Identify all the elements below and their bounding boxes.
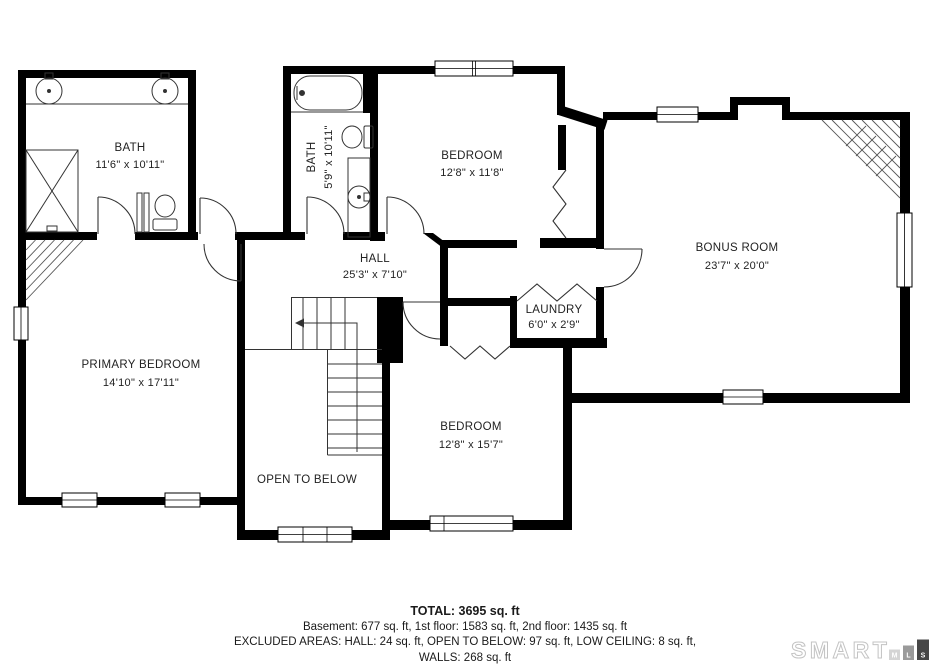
logo-brand-text: SMART: [791, 637, 890, 663]
svg-text:12'8" x 11'8": 12'8" x 11'8": [440, 167, 503, 179]
laundry-bifold-door: [517, 284, 597, 301]
bathtub-icon: [294, 76, 362, 110]
shower-icon: [26, 150, 78, 232]
toilet-icon: [153, 195, 177, 230]
svg-text:25'3" x 7'10": 25'3" x 7'10": [343, 269, 407, 281]
floor-areas: Basement: 677 sq. ft, 1st floor: 1583 sq…: [0, 620, 930, 636]
svg-text:BATH: BATH: [306, 141, 318, 172]
room-label-bath-small: BATH 5'9" x 10'11": [306, 125, 335, 188]
svg-text:12'8" x 15'7": 12'8" x 15'7": [439, 439, 503, 451]
svg-text:6'0" x 2'9": 6'0" x 2'9": [528, 319, 579, 331]
svg-text:L: L: [906, 653, 911, 660]
svg-text:BONUS ROOM: BONUS ROOM: [696, 242, 779, 254]
smartmls-logo: SMART M L S: [788, 634, 930, 664]
room-label-hall: HALL 25'3" x 7'10": [343, 253, 407, 281]
svg-text:BEDROOM: BEDROOM: [441, 150, 503, 162]
stair-direction-arrow: [303, 323, 357, 452]
low-ceiling-hatch: [26, 120, 900, 300]
svg-text:BATH: BATH: [114, 142, 145, 154]
vanity-sink-icon: [348, 158, 370, 237]
svg-text:14'10" x 17'11": 14'10" x 17'11": [103, 377, 179, 389]
room-label-laundry: LAUNDRY 6'0" x 2'9": [518, 302, 590, 331]
toilet-icon: [342, 126, 373, 148]
svg-text:11'6" x 10'11": 11'6" x 10'11": [95, 159, 164, 171]
svg-text:S: S: [921, 653, 926, 660]
svg-text:M: M: [892, 653, 898, 660]
floor-plan: BATH 11'6" x 10'11" BATH 5'9" x 10'11" B…: [0, 0, 930, 600]
staircase: [245, 298, 382, 456]
room-label-open-to-below: OPEN TO BELOW: [257, 474, 357, 486]
total-area: TOTAL: 3695 sq. ft: [0, 604, 930, 620]
room-label-primary-bedroom: PRIMARY BEDROOM 14'10" x 17'11": [81, 359, 200, 389]
room-label-bedroom-top: BEDROOM 12'8" x 11'8": [440, 150, 503, 179]
svg-text:23'7" x 20'0": 23'7" x 20'0": [705, 260, 769, 272]
floor-plan-page: BATH 11'6" x 10'11" BATH 5'9" x 10'11" B…: [0, 0, 930, 668]
room-label-bonus-room: BONUS ROOM 23'7" x 20'0": [696, 242, 779, 272]
svg-text:LAUNDRY: LAUNDRY: [526, 304, 583, 316]
bedroom-closet-bifold-door: [553, 170, 566, 238]
room-label-bedroom-bottom: BEDROOM 12'8" x 15'7": [439, 421, 503, 451]
svg-text:PRIMARY BEDROOM: PRIMARY BEDROOM: [81, 359, 200, 371]
room-label-bath-main: BATH 11'6" x 10'11": [95, 142, 164, 171]
closet-bifold-door: [450, 346, 510, 359]
svg-text:OPEN TO BELOW: OPEN TO BELOW: [257, 474, 357, 486]
svg-text:HALL: HALL: [360, 253, 390, 265]
svg-text:5'9" x 10'11": 5'9" x 10'11": [323, 125, 335, 188]
svg-text:BEDROOM: BEDROOM: [440, 421, 502, 433]
room-labels: BATH 11'6" x 10'11" BATH 5'9" x 10'11" B…: [81, 125, 778, 486]
walls: [18, 66, 910, 540]
